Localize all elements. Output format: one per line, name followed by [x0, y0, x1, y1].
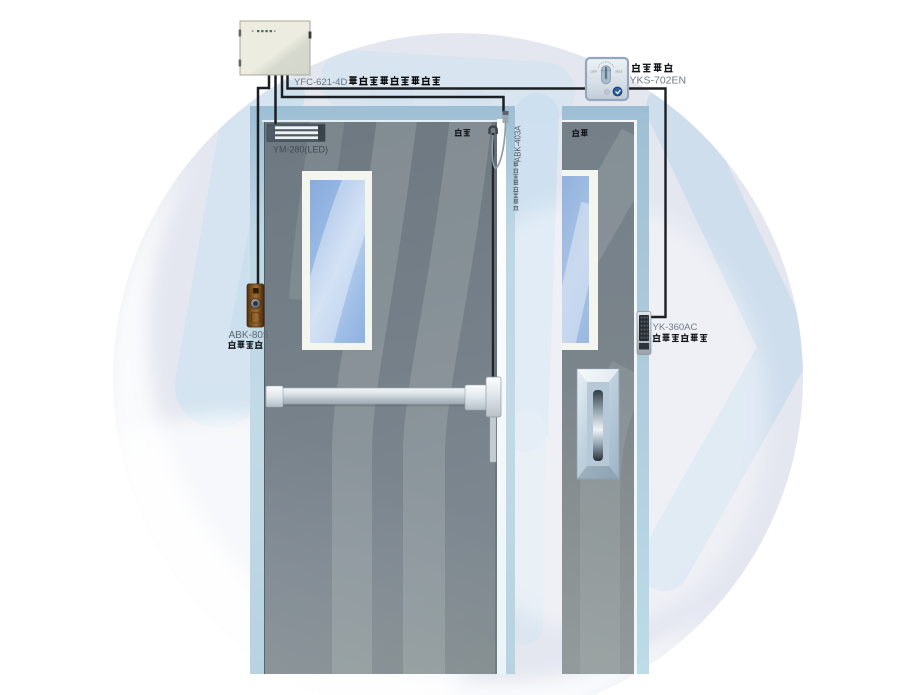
svg-text:YM-280(LED): YM-280(LED): [273, 145, 328, 155]
svg-text:ABK-805: ABK-805: [229, 330, 269, 341]
svg-text:OFF: OFF: [590, 70, 598, 74]
svg-text:YKS-702EN: YKS-702EN: [630, 75, 687, 87]
svg-text:YK-360AC: YK-360AC: [653, 322, 698, 333]
svg-text:YFC-621-4D: YFC-621-4D: [294, 77, 347, 88]
svg-text:RST: RST: [616, 70, 624, 74]
svg-text:ABK-403A: ABK-403A: [514, 125, 523, 162]
